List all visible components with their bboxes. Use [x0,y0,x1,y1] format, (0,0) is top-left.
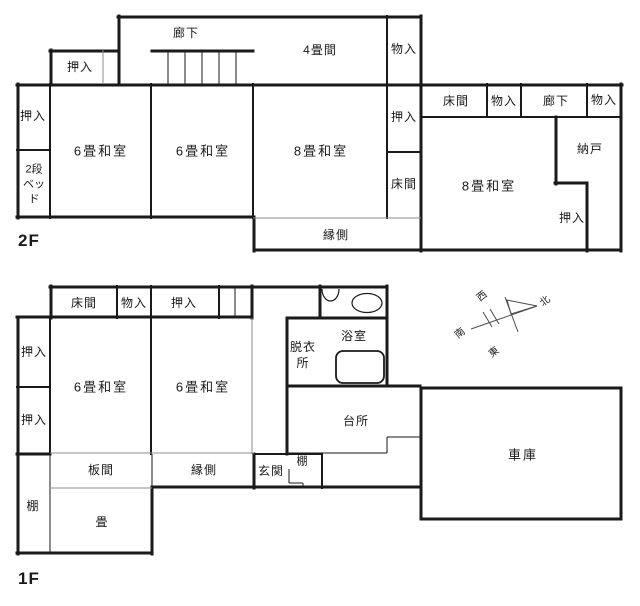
f1-wood-floor-label: 板間 [88,464,114,476]
f1-washitsu6-a-label: 6畳和室 [74,381,128,394]
f2-corridor-top-label: 廊下 [173,27,199,39]
f2-room-4tatami-label: 4畳間 [303,44,337,56]
f2-alcove-mid-label: 床間 [391,178,417,190]
f1-shelf-entrance-label: 棚 [297,457,308,468]
f2-corridor-right-label: 廊下 [543,95,569,107]
f1-kitchen-label: 台所 [343,415,369,427]
f1-floor-label: 1F [18,569,40,589]
f2-storage-right-b-label: 物入 [591,94,617,106]
f2-closet-right-label: 押入 [559,212,585,224]
f2-closet-left-label: 押入 [20,110,46,122]
f1-dressing-room-label: 脱衣 所 [290,339,316,371]
f1-bathroom-label: 浴室 [341,330,367,342]
f2-washitsu6-a-label: 6畳和室 [74,145,128,158]
f2-storeroom-label: 納戸 [577,143,603,155]
stairs-icon [168,50,236,84]
f2-alcove-right-label: 床間 [443,95,469,107]
bathtub-icon [336,351,384,383]
f1-outer-walls [17,286,621,554]
sink-icon [322,289,339,301]
f1-storage-label: 物入 [121,297,147,309]
f1-garage-label: 車庫 [508,449,538,462]
kitchen-counter [287,437,420,453]
f1-veranda-label: 縁側 [191,464,217,476]
f1-shelf-left-label: 棚 [26,500,39,512]
f2-floor-label: 2F [18,231,40,251]
f1-tatami-label: 畳 [95,516,108,528]
f2-bunk-bed-label: 2段 ベッ ド [23,163,45,208]
f2-washitsu8-a-label: 8畳和室 [294,145,348,158]
f2-closet-upper-label: 押入 [67,61,93,73]
f2-closet-mid-label: 押入 [391,111,417,123]
f1-closet-left-a-label: 押入 [21,346,47,358]
f2-washitsu6-b-label: 6畳和室 [176,145,230,158]
floorplan: 廊下 押入 4畳間 物入 押入 2段 ベッ ド 6畳和室 6畳和室 8畳和室 押… [0,0,640,606]
f1-entrance-label: 玄関 [258,465,284,477]
under-stairs-and-dividers [50,286,235,554]
f1-closet-left-b-label: 押入 [21,414,47,426]
f1-closet-top-label: 押入 [171,297,197,309]
f2-washitsu8-b-label: 8畳和室 [462,180,516,193]
genkan-step-icon [289,469,303,488]
f1-washitsu6-b-label: 6畳和室 [176,381,230,394]
f2-storage-right-a-label: 物入 [491,95,517,107]
toilet-icon [352,294,382,313]
f2-veranda-label: 縁側 [323,229,349,241]
f1-alcove-label: 床間 [71,297,97,309]
f2-storage-upper-label: 物入 [391,43,417,55]
